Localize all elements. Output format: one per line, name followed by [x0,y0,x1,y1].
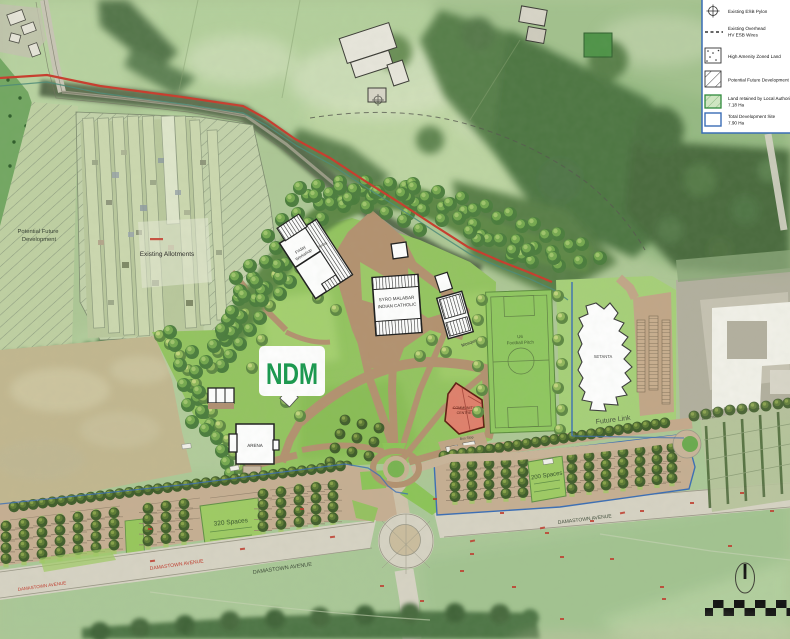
svg-text:HV ESB Wires: HV ESB Wires [728,33,759,38]
svg-text:Total Development Site: Total Development Site [728,114,776,119]
svg-text:High Amenity Zoned Land: High Amenity Zoned Land [728,54,781,59]
svg-text:7.18 Ha: 7.18 Ha [728,103,745,108]
svg-text:7.90 Ha: 7.90 Ha [728,121,745,126]
svg-text:Existing Overhead: Existing Overhead [728,26,766,31]
svg-text:Land retained by Local Authori: Land retained by Local Authority [728,96,790,101]
svg-text:Potential Future Development: Potential Future Development [728,78,789,83]
svg-text:Existing ESB Pylon: Existing ESB Pylon [728,9,768,14]
